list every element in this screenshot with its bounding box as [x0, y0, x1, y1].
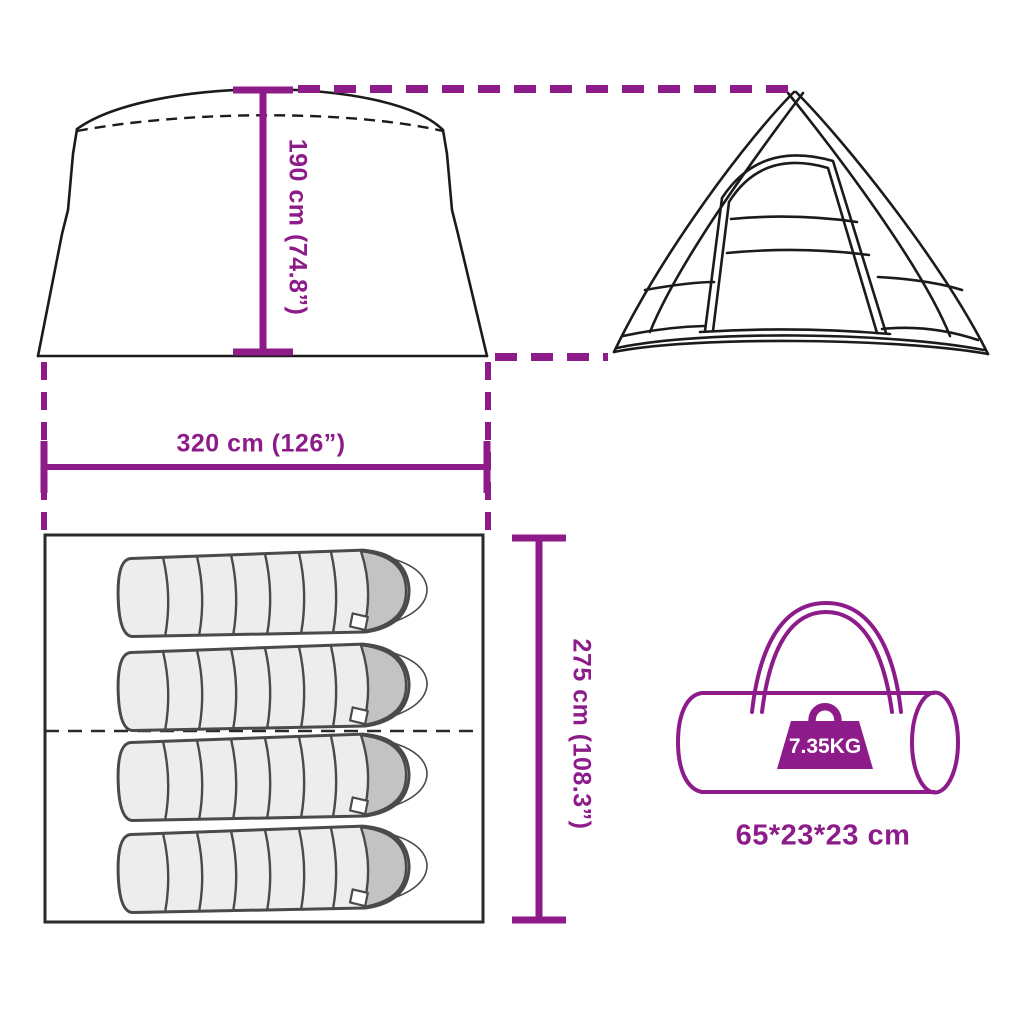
sleeping-bag-2 — [117, 642, 428, 733]
depth-dimension-label: 275 cm (108.3”) — [567, 639, 596, 830]
tent-front-right-side — [443, 130, 487, 356]
carry-bag-drawing — [678, 603, 958, 793]
depth-dimension-line — [512, 538, 566, 920]
tent-side-view-drawing — [614, 92, 988, 354]
tent-side-right-edge — [796, 92, 988, 354]
carry-bag-left-cap — [678, 693, 702, 792]
tent-side-door-seam — [727, 250, 869, 255]
tent-side-left-panel-seam — [645, 282, 714, 290]
tent-side-door-outer — [705, 155, 886, 333]
tent-side-left-edge — [614, 92, 794, 352]
sleeping-bag-4 — [117, 824, 428, 915]
tent-side-window-sill — [731, 217, 857, 222]
diagram-canvas: 190 cm (74.8”) 320 cm (126”) 275 cm (108… — [0, 0, 1024, 1024]
tent-side-left-lower-seam — [623, 326, 704, 336]
carry-bag-right-cap — [912, 693, 958, 793]
tent-front-left-side — [38, 129, 77, 356]
tent-side-door-inner — [713, 163, 877, 333]
sleeping-bag-3 — [117, 732, 428, 823]
floor-plan-drawing — [45, 535, 483, 922]
carry-bag-size-label: 65*23*23 cm — [736, 820, 911, 853]
sleeping-bag-1 — [117, 548, 428, 639]
tent-side-door-bottom — [700, 329, 890, 334]
width-dimension-label: 320 cm (126”) — [176, 430, 345, 459]
height-dimension-label: 190 cm (74.8”) — [283, 139, 312, 316]
weight-value-label: 7.35KG — [789, 735, 861, 759]
diagram-artwork — [0, 0, 1024, 1024]
tent-side-pole-right — [788, 93, 950, 336]
